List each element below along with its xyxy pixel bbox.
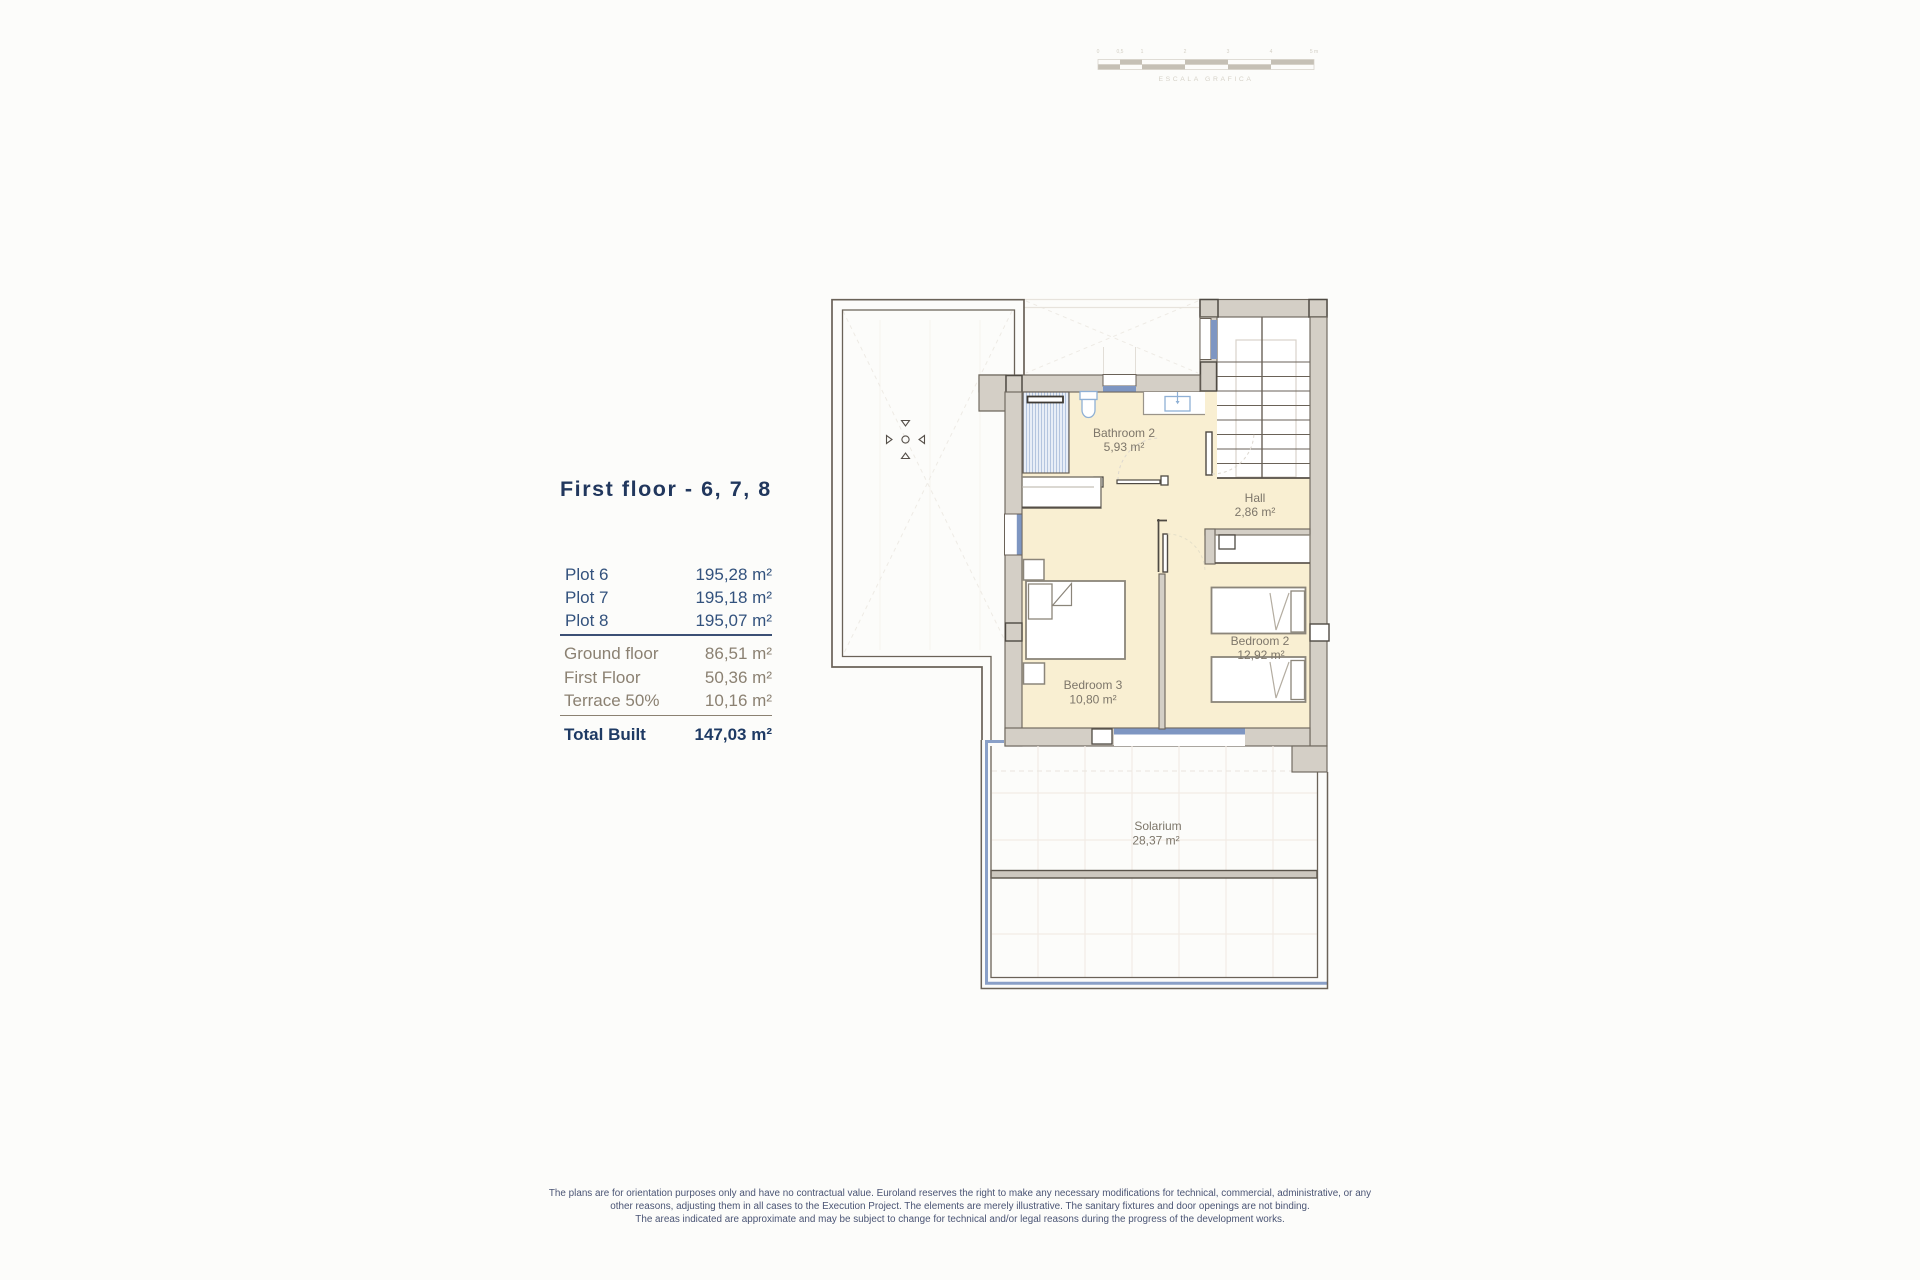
svg-text:2,86 m²: 2,86 m² [1235, 505, 1276, 519]
svg-text:Bathroom 2: Bathroom 2 [1093, 426, 1155, 440]
svg-text:Bedroom 2: Bedroom 2 [1231, 634, 1290, 648]
svg-text:12,92 m²: 12,92 m² [1237, 648, 1284, 662]
svg-text:10,80 m²: 10,80 m² [1069, 693, 1116, 707]
svg-text:Solarium: Solarium [1134, 819, 1181, 833]
svg-text:Hall: Hall [1245, 491, 1266, 505]
svg-text:28,37 m²: 28,37 m² [1132, 834, 1179, 848]
svg-text:Bedroom 3: Bedroom 3 [1064, 678, 1123, 692]
svg-text:5,93 m²: 5,93 m² [1104, 440, 1145, 454]
